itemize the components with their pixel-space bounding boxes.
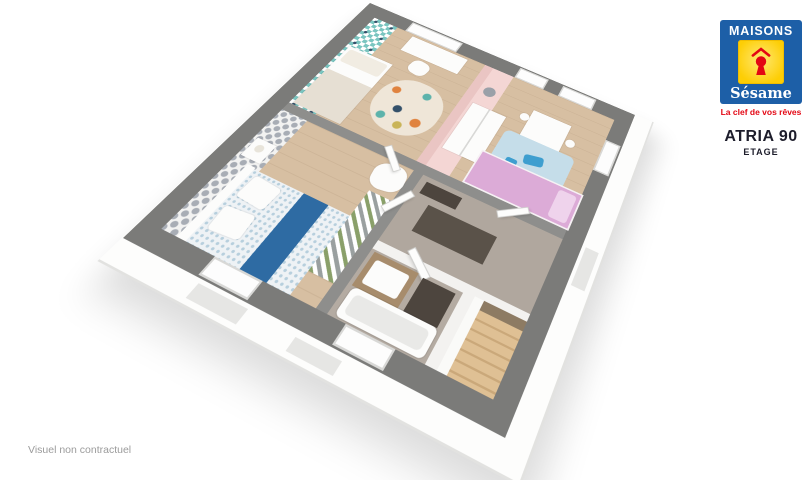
logo-sesame-text: Sésame bbox=[730, 87, 792, 102]
floorplan-visual: MAISONS Sésame La clef de vos rêves ATRI… bbox=[0, 0, 811, 480]
disclaimer-text: Visuel non contractuel bbox=[28, 444, 131, 456]
plan-title: ATRIA 90 ETAGE bbox=[705, 129, 811, 157]
logo-yellow-box bbox=[738, 40, 784, 84]
floorplan-3d bbox=[123, 3, 635, 438]
logo-tagline: La clef de vos rêves bbox=[705, 107, 811, 117]
keyhole-icon bbox=[748, 47, 774, 77]
model-name: ATRIA 90 bbox=[705, 129, 811, 145]
floor-level: ETAGE bbox=[705, 147, 811, 157]
logo-square: MAISONS Sésame bbox=[720, 20, 802, 104]
logo-maisons-text: MAISONS bbox=[729, 25, 793, 38]
brand-logo: MAISONS Sésame La clef de vos rêves bbox=[705, 20, 811, 117]
